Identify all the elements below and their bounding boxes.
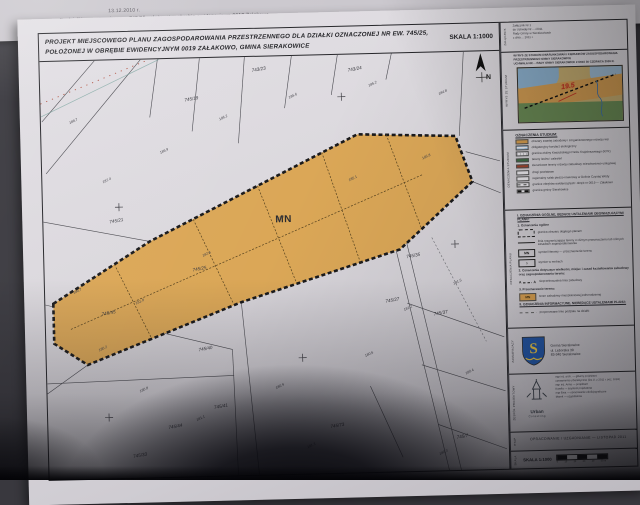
- legend-item-label: regionalny szlak pieszo-rowerowy w Dolin…: [532, 175, 609, 180]
- urban-consulting-logo: Urban Consulting: [521, 376, 552, 430]
- plan-legend-item: AAnieprzekraczalna linia zabudowy: [519, 276, 630, 287]
- attachment-line: z dnia ... 2011 r.: [513, 34, 624, 41]
- legend-item-label: kierunkowe tereny rozwoju zabudowy miesz…: [532, 162, 616, 167]
- plan-legend-item: MNsymbol literowy — przeznaczenie terenu: [518, 247, 629, 258]
- team-member-line: Marek — uzgodnienia: [556, 394, 621, 399]
- studium-legend-vlabel: OZNACZENIA STUDIUM: [502, 131, 514, 210]
- client-address2: 83-340 Sierakowice: [551, 352, 581, 357]
- back-sheet-text: 13.12.2010 r.: [108, 7, 140, 14]
- studium-extract-vlabel: WYRYS ZE STUDIUM: [500, 53, 512, 130]
- svg-text:S: S: [529, 341, 538, 357]
- mn-zone-polygon: [49, 132, 476, 366]
- legend-swatch-plain: [516, 176, 529, 181]
- line-symbol: [518, 239, 535, 247]
- legend-swatch-green: [516, 158, 529, 163]
- plan-legend-item: proponowane linie podziału na działki: [520, 306, 631, 317]
- scale-vlabel: SKALA: [510, 451, 520, 468]
- attachment-row: ZAŁĄCZNIK Załącznik Nr 1do Uchwały Nr ..…: [500, 20, 628, 53]
- mnswatch-symbol: MN: [519, 293, 536, 301]
- plan-legend-item: linia rozgraniczająca tereny o różnym pr…: [518, 237, 629, 248]
- plan-item-label: proponowane linie podziału na działki: [540, 309, 590, 314]
- legend-swatch-orange: [515, 139, 528, 144]
- plan-legend-heading: I. OZNACZENIA OGÓLNE, BĘDĄCE USTALENIAMI…: [517, 212, 628, 222]
- north-label: N: [486, 74, 491, 81]
- legend-swatch-bluestripe: [516, 145, 529, 150]
- buildline-symbol: AA: [519, 278, 536, 286]
- plan-item-label: nieprzekraczalna linia zabudowy: [539, 279, 582, 283]
- client-row: ZAMAWIAJĄCY S Gmina Sierakowice ul. Lębo…: [507, 326, 635, 375]
- logo-subtitle: Consulting: [522, 414, 552, 419]
- plan-item-label: linia rozgraniczająca tereny o różnym pr…: [538, 237, 629, 246]
- design-team-vlabel: ZESPÓŁ PROJEKTOWY: [508, 374, 519, 431]
- legend-swatch-brick: [516, 164, 529, 169]
- studium-inset-map: 19.5: [516, 65, 623, 124]
- inset-linework: [517, 66, 622, 123]
- red-boundary-line: [39, 59, 150, 104]
- lighthouse-logo-icon: [526, 379, 547, 403]
- map-column: PROJEKT MIEJSCOWEGO PLANU ZAGOSPODAROWAN…: [39, 23, 511, 480]
- plan-item-label: wymiar w metrach: [538, 261, 562, 265]
- legend-item-label: granica otuliny Kaszubskiego Parku Krajo…: [532, 150, 611, 155]
- buildline-letter: A: [533, 280, 536, 284]
- cadastral-map: N MN 745/25745/45745/40745/41745/44745/3…: [39, 51, 509, 480]
- legend-swatch-graystripe: [516, 152, 529, 157]
- legend-item-label: drogi powiatowe: [532, 170, 554, 174]
- scale-text: SKALA 1:1000: [523, 457, 552, 463]
- map-linework: N: [39, 51, 509, 480]
- scale-tick: 40: [592, 459, 595, 462]
- plan-item-label: symbol literowy — przeznaczenie terenu: [538, 250, 592, 255]
- legend-swatch-blackdash: [517, 189, 530, 194]
- studium-legend-row: OZNACZENIA STUDIUM OZNACZENIA STUDIUM: o…: [502, 128, 631, 211]
- dimbox-symbol: 5: [518, 259, 535, 267]
- plan-legend-item: granica obszaru objętego planem: [518, 227, 629, 238]
- sierakowice-coat-of-arms: S: [520, 335, 547, 368]
- studium-legend-item: granica gminy Sierakowice: [517, 186, 628, 193]
- legend-item-label: tereny lasów i zalesień: [532, 158, 562, 162]
- scale-tick: 0: [557, 460, 558, 463]
- buildline-letter: A: [519, 280, 522, 284]
- client-vlabel: ZAMAWIAJĄCY: [507, 328, 518, 373]
- legend-item-label: obligatoryjny korytarz ekologiczny: [532, 145, 577, 149]
- scale-tick: 10: [564, 460, 567, 463]
- plan-item-label: granica obszaru objętego planem: [538, 230, 582, 234]
- mnbox-symbol: MN: [518, 249, 535, 257]
- plan-legend-row: OZNACZENIA PLANU I. OZNACZENIA OGÓLNE, B…: [504, 208, 634, 329]
- attachment-row-vlabel: ZAŁĄCZNIK: [500, 23, 511, 52]
- boundary-symbol: [518, 229, 535, 237]
- legend-item-label: obszary zwartej zabudowy i zorganizowane…: [531, 138, 608, 143]
- scale-tick: 20: [574, 460, 577, 463]
- legend-sidebar: ZAŁĄCZNIK Załącznik Nr 1do Uchwały Nr ..…: [500, 20, 638, 469]
- studium-extract-row: WYRYS ZE STUDIUM WYRYS ZE STUDIUM UWARUN…: [500, 50, 629, 131]
- splitdash-symbol: [520, 308, 537, 316]
- scale-row: SKALA SKALA 1:1000 01020304050 m: [510, 449, 637, 469]
- stage-text: OPRACOWANIE / UZGADNIANIE — LISTOPAD 201…: [523, 432, 634, 442]
- north-arrow: N: [475, 53, 491, 82]
- legend-item-label: granice obrębów ewidencyjnych: obręb nr …: [532, 181, 612, 186]
- scale-tick: 30: [583, 460, 586, 463]
- legend-swatch-plain: [516, 170, 529, 175]
- plan-sheet: PROJEKT MIEJSCOWEGO PLANU ZAGOSPODAROWAN…: [17, 5, 640, 505]
- plan-item-label: teren zabudowy mieszkaniowej jednorodzin…: [539, 294, 601, 299]
- scale-tick: 50 m: [601, 459, 606, 462]
- legend-swatch-dash: [516, 182, 529, 187]
- design-team-row: ZESPÓŁ PROJEKTOWY Urban Consulting mgr i…: [508, 372, 636, 433]
- plan-frame: PROJEKT MIEJSCOWEGO PLANU ZAGOSPODAROWAN…: [38, 19, 639, 481]
- plan-scale: SKALA 1:1000: [449, 33, 493, 41]
- scale-ticks: 01020304050 m: [557, 459, 609, 463]
- legend-item-label: granica gminy Sierakowice: [533, 188, 569, 192]
- stage-vlabel: ETAP: [510, 432, 520, 450]
